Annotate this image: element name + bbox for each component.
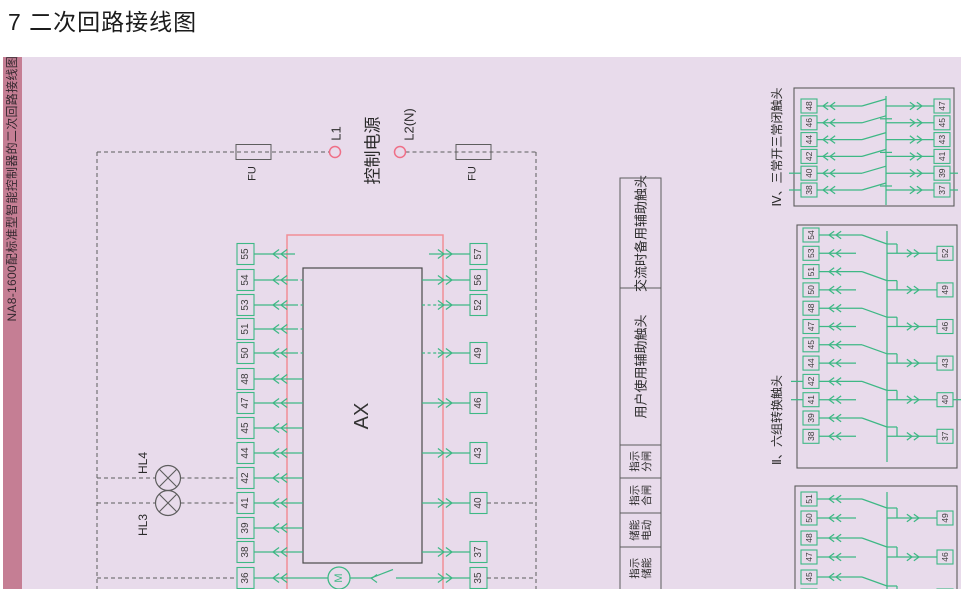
- legend-cell-label: 指示: [629, 468, 640, 589]
- control-power-label: 控制电源: [365, 57, 382, 250]
- page-title: 7 二次回路接线图: [8, 3, 197, 37]
- page: 7 二次回路接线图 555754565352515049484746454443…: [0, 0, 961, 589]
- fuse2-label: FU: [468, 73, 479, 273]
- label-layer: FUFUL1L2(N)控制电源AXHL4HL3交流时备用辅助触头用户使用辅助触头…: [3, 57, 961, 589]
- diagram-canvas: 5557545653525150494847464544434241403938…: [3, 57, 961, 589]
- fuse1-label: FU: [248, 73, 259, 273]
- ax-label: AX: [352, 316, 372, 516]
- l1-label: L1: [330, 57, 343, 233]
- legend-cell-label: 储能: [641, 468, 652, 589]
- aux-box-ii-label: Ⅱ、六组转换触头: [771, 320, 783, 520]
- l2-label: L2(N): [403, 57, 416, 224]
- lamp-label-HL3: HL3: [137, 425, 149, 589]
- aux-box-iv-label: Ⅳ、三常开三常闭触头: [771, 57, 783, 247]
